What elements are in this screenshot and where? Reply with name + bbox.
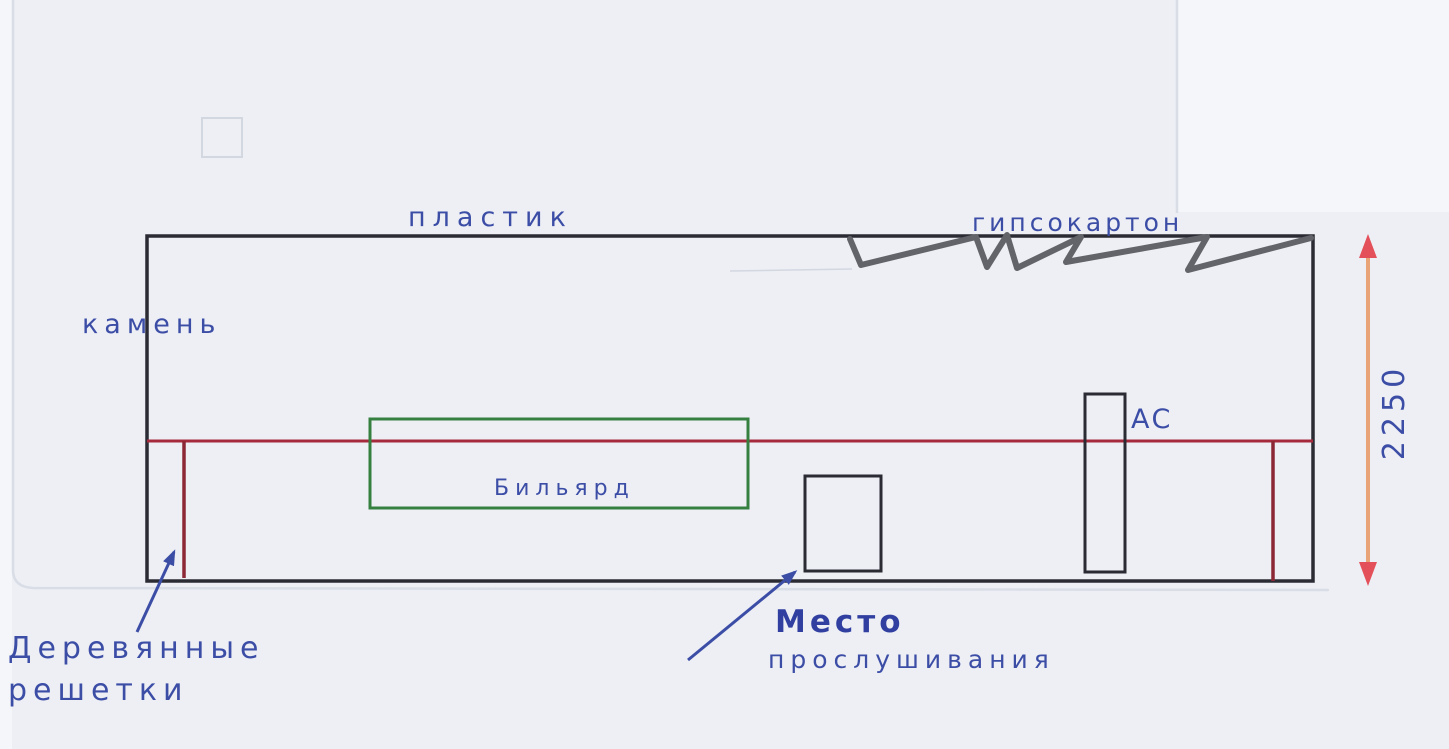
scanned-room-sketch: пластик гипсокартон камень Бильярд АС Ме… [0,0,1449,749]
outside-area-top-right [1178,0,1449,212]
label-listening-line1: Место [775,604,905,640]
label-stone: камень [82,309,221,340]
label-listening-line2: прослушивания [768,645,1055,674]
label-height-dimension: 2250 [1377,364,1412,460]
label-drywall: гипсокартон [972,208,1183,237]
label-grilles-line1: Деревянные [8,631,265,666]
room-sketch-canvas: пластик гипсокартон камень Бильярд АС Ме… [0,0,1449,749]
label-grilles-line2: решетки [8,673,189,708]
label-billiard: Бильярд [494,476,635,501]
label-plastic: пластик [408,202,573,233]
label-speakers: АС [1131,404,1172,435]
